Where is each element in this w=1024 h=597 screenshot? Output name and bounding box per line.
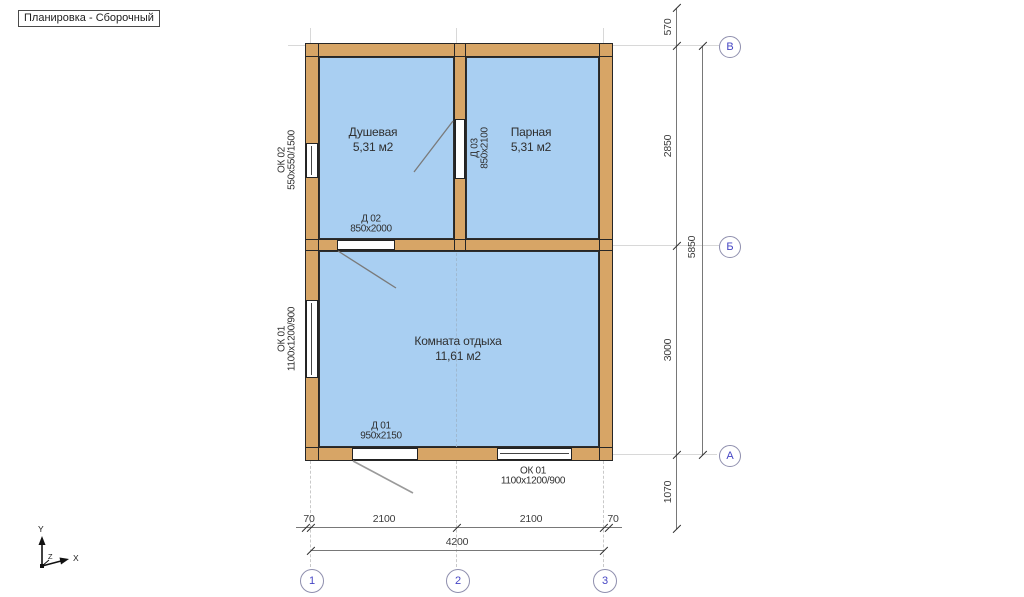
dimension-tick [673, 42, 682, 51]
wall-post [599, 447, 613, 461]
axis-number: 1 [309, 575, 315, 587]
dimension-tick [673, 4, 682, 13]
axis-number: 3 [602, 575, 608, 587]
dimension-total-value: 5850 [686, 236, 698, 259]
wall-post [305, 447, 319, 461]
room-name: Душевая [349, 125, 398, 140]
window-ok01-left [306, 300, 318, 378]
dimension-value: 70 [607, 513, 618, 525]
window-ok01-bottom [497, 448, 572, 460]
dimension-tick [673, 242, 682, 251]
door-d03 [455, 119, 465, 179]
door-label-d01: Д 01 950х2150 [360, 422, 402, 441]
window-label-ok01-bottom: ОК 01 1100х1200/900 [501, 467, 565, 486]
room-name: Парная [511, 125, 552, 140]
wall-post [599, 43, 613, 57]
triad-z-label: Z [48, 552, 53, 561]
grid-line [456, 28, 457, 43]
opening-size: 550х550/1500 [287, 130, 297, 190]
wall-post [454, 239, 466, 251]
grid-line [310, 28, 311, 43]
grid-line [288, 45, 305, 46]
opening-size: 950х2150 [360, 431, 402, 441]
triad-x-label: X [73, 553, 79, 563]
window-glazing-line [311, 146, 312, 175]
grid-line [456, 461, 457, 567]
dimension-tick [600, 547, 609, 556]
door-d01 [352, 448, 418, 460]
window-glazing-line [311, 303, 312, 375]
wall-post [599, 239, 613, 251]
room-name: Комната отдыха [414, 334, 501, 349]
room-label-shower: Душевая 5,31 м2 [349, 125, 398, 155]
room-area: 11,61 м2 [414, 349, 501, 364]
axis-bubble-b: Б [719, 236, 741, 258]
dimension-value: 1070 [662, 481, 674, 504]
axis-bubble-3: 3 [593, 569, 617, 593]
dimension-line [702, 46, 703, 455]
dimension-tick [673, 451, 682, 460]
axis-bubble-a: А [719, 445, 741, 467]
room-label-steam: Парная 5,31 м2 [511, 125, 552, 155]
window-label-ok02: ОК 02 550х550/1500 [278, 130, 297, 190]
triad-y-label: Y [38, 524, 44, 534]
axis-letter: Б [726, 241, 733, 253]
window-label-ok01-left: ОК 01 1100х1200/900 [278, 307, 297, 371]
wall-post [454, 43, 466, 57]
dimension-value: 2850 [662, 135, 674, 158]
plan-canvas[interactable]: Планировка - Сборочный [0, 0, 1024, 597]
dimension-value: 70 [303, 513, 314, 525]
dimension-value: 2100 [373, 513, 396, 525]
dimension-line [311, 550, 604, 551]
grid-line [613, 245, 719, 246]
dimension-value: 570 [662, 19, 674, 36]
window-ok02 [306, 143, 318, 178]
door-label-d03: Д 03 850х2100 [471, 127, 490, 169]
room-label-rest: Комната отдыха 11,61 м2 [414, 334, 501, 364]
axis-bubble-2: 2 [446, 569, 470, 593]
wall-right [599, 43, 613, 461]
axis-bubble-1: 1 [300, 569, 324, 593]
opening-size: 850х2000 [350, 224, 392, 234]
dimension-tick [673, 525, 682, 534]
dimension-tick [699, 451, 708, 460]
door-d02 [337, 240, 395, 250]
dimension-tick [453, 524, 462, 533]
axis-letter: А [726, 450, 733, 462]
dimension-tick [699, 42, 708, 51]
wall-post [305, 43, 319, 57]
opening-size: 1100х1200/900 [287, 307, 297, 371]
dimension-line [676, 8, 677, 529]
axis-letter: В [726, 41, 733, 53]
window-glazing-line [500, 453, 569, 454]
grid-line [603, 28, 604, 43]
dimension-value: 2100 [520, 513, 543, 525]
opening-size: 1100х1200/900 [501, 476, 565, 486]
opening-size: 850х2100 [480, 127, 490, 169]
axis-bubble-v: В [719, 36, 741, 58]
dimension-tick [307, 547, 316, 556]
dimension-line [296, 527, 622, 528]
wall-post [305, 239, 319, 251]
orientation-triad-icon [39, 536, 70, 568]
axis-number: 2 [455, 575, 461, 587]
viewport-label[interactable]: Планировка - Сборочный [18, 10, 160, 27]
dimension-total-value: 4200 [446, 536, 469, 548]
dimension-value: 3000 [662, 339, 674, 362]
wall-left [305, 43, 319, 461]
room-area: 5,31 м2 [511, 140, 552, 155]
door-label-d02: Д 02 850х2000 [350, 215, 392, 234]
room-area: 5,31 м2 [349, 140, 398, 155]
